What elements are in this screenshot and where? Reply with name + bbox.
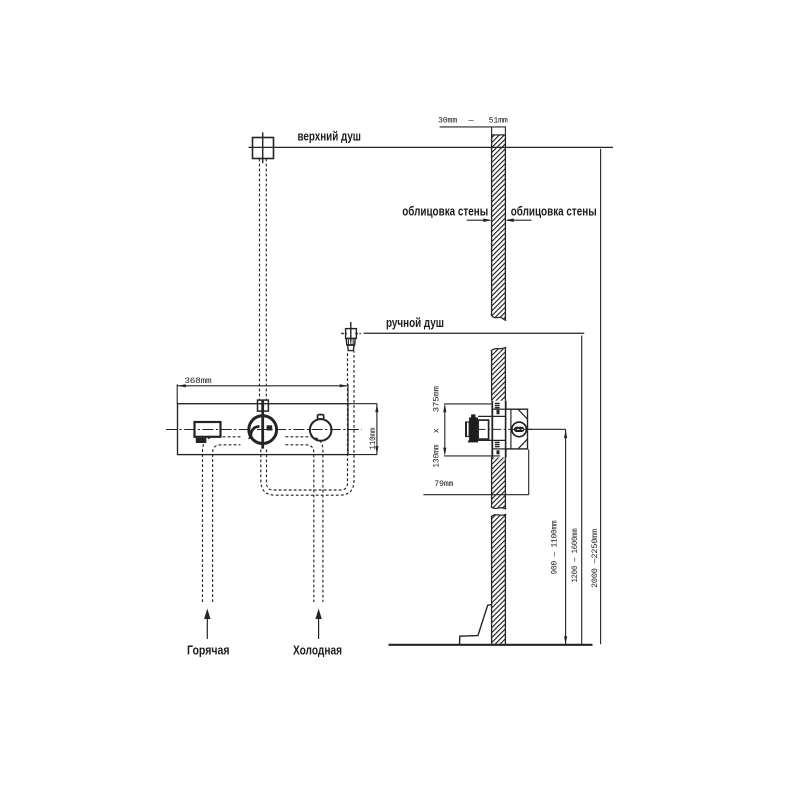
svg-text:110mm: 110mm [369,428,378,450]
svg-text:79mm: 79mm [434,480,453,489]
svg-text:30mm: 30mm [438,117,457,126]
svg-text:130mm: 130mm [432,444,441,467]
svg-text:Горячая: Горячая [187,644,230,658]
svg-text:x: x [432,428,441,433]
svg-text:облицовка стены: облицовка стены [402,205,488,219]
svg-text:ручной душ: ручной душ [386,316,444,330]
svg-text:Холодная: Холодная [293,644,342,658]
svg-text:900 — 1100mm: 900 — 1100mm [551,520,560,574]
svg-text:1200 — 1600mm: 1200 — 1600mm [571,528,580,582]
svg-text:—: — [468,117,475,126]
svg-text:51mm: 51mm [489,117,508,126]
svg-text:375mm: 375mm [432,386,441,412]
svg-text:облицовка стены: облицовка стены [511,205,597,219]
svg-text:верхний душ: верхний душ [298,130,362,144]
svg-text:2000 —2250mm: 2000 —2250mm [591,529,600,588]
svg-text:368mm: 368mm [184,377,211,386]
